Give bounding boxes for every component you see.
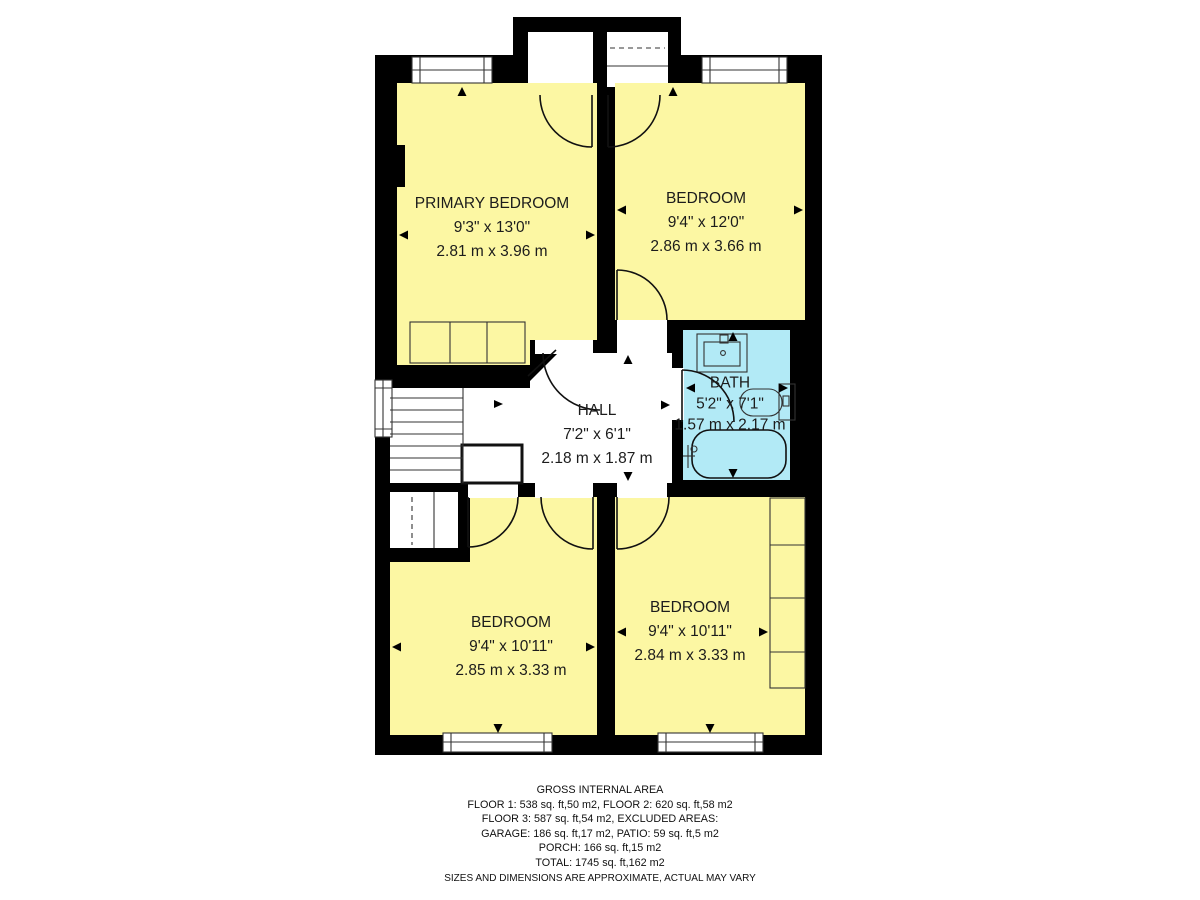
room-size-imperial: 9'3" x 13'0" <box>415 216 569 240</box>
room-label-primary-bedroom: PRIMARY BEDROOM 9'3" x 13'0" 2.81 m x 3.… <box>415 192 569 264</box>
window-bottom-right <box>658 733 763 752</box>
bedroom-bottom-right-door-opening <box>617 483 667 498</box>
room-name: BEDROOM <box>634 596 745 620</box>
area-summary-line: GARAGE: 186 sq. ft,17 m2, PATIO: 59 sq. … <box>444 827 756 842</box>
room-label-bedroom-bottom-right: BEDROOM 9'4" x 10'11" 2.84 m x 3.33 m <box>634 596 745 668</box>
room-label-bath: BATH 5'2" x 7'1" 1.57 m x 2.17 m <box>674 373 785 436</box>
room-size-metric: 2.86 m x 3.66 m <box>650 235 761 259</box>
left-wall-pier <box>397 145 405 187</box>
room-name: BATH <box>674 373 785 394</box>
primary-bedroom-floor-notch <box>397 340 530 365</box>
closet-right-floor <box>607 32 668 87</box>
room-size-imperial: 9'4" x 12'0" <box>650 211 761 235</box>
understairs-closet-floor <box>390 492 458 548</box>
area-summary-disclaimer: SIZES AND DIMENSIONS ARE APPROXIMATE, AC… <box>444 872 756 887</box>
window-top-right <box>702 57 787 83</box>
room-size-imperial: 9'4" x 10'11" <box>455 635 566 659</box>
room-label-hall: HALL 7'2" x 6'1" 2.18 m x 1.87 m <box>541 399 652 471</box>
stairwell-floor <box>390 388 530 483</box>
area-summary-line: FLOOR 1: 538 sq. ft,50 m2, FLOOR 2: 620 … <box>444 798 756 813</box>
room-name: BEDROOM <box>650 187 761 211</box>
room-size-imperial: 5'2" x 7'1" <box>674 394 785 415</box>
room-size-metric: 2.81 m x 3.96 m <box>415 240 569 264</box>
room-size-metric: 2.84 m x 3.33 m <box>634 644 745 668</box>
room-size-metric: 1.57 m x 2.17 m <box>674 415 785 436</box>
area-summary-title: GROSS INTERNAL AREA <box>444 783 756 798</box>
area-summary: GROSS INTERNAL AREA FLOOR 1: 538 sq. ft,… <box>444 783 756 886</box>
room-size-imperial: 7'2" x 6'1" <box>541 423 652 447</box>
bedroom-top-right-door-opening <box>617 320 667 354</box>
room-label-bedroom-top-right: BEDROOM 9'4" x 12'0" 2.86 m x 3.66 m <box>650 187 761 259</box>
window-left-stairs <box>375 380 392 437</box>
room-name: HALL <box>541 399 652 423</box>
area-summary-line: FLOOR 3: 587 sq. ft,54 m2, EXCLUDED AREA… <box>444 812 756 827</box>
closet-left-floor <box>528 32 593 87</box>
room-size-metric: 2.18 m x 1.87 m <box>541 447 652 471</box>
area-summary-line: TOTAL: 1745 sq. ft,162 m2 <box>444 856 756 871</box>
room-size-metric: 2.85 m x 3.33 m <box>455 659 566 683</box>
room-name: BEDROOM <box>455 611 566 635</box>
room-name: PRIMARY BEDROOM <box>415 192 569 216</box>
window-bottom-left <box>443 733 552 752</box>
room-size-imperial: 9'4" x 10'11" <box>634 620 745 644</box>
room-label-bedroom-bottom-left: BEDROOM 9'4" x 10'11" 2.85 m x 3.33 m <box>455 611 566 683</box>
bedroom-bottom-left-door-opening <box>535 483 593 498</box>
window-top-left <box>412 57 492 83</box>
primary-door-opening <box>535 340 593 354</box>
area-summary-line: PORCH: 166 sq. ft,15 m2 <box>444 841 756 856</box>
closet-door-opening <box>468 483 518 498</box>
